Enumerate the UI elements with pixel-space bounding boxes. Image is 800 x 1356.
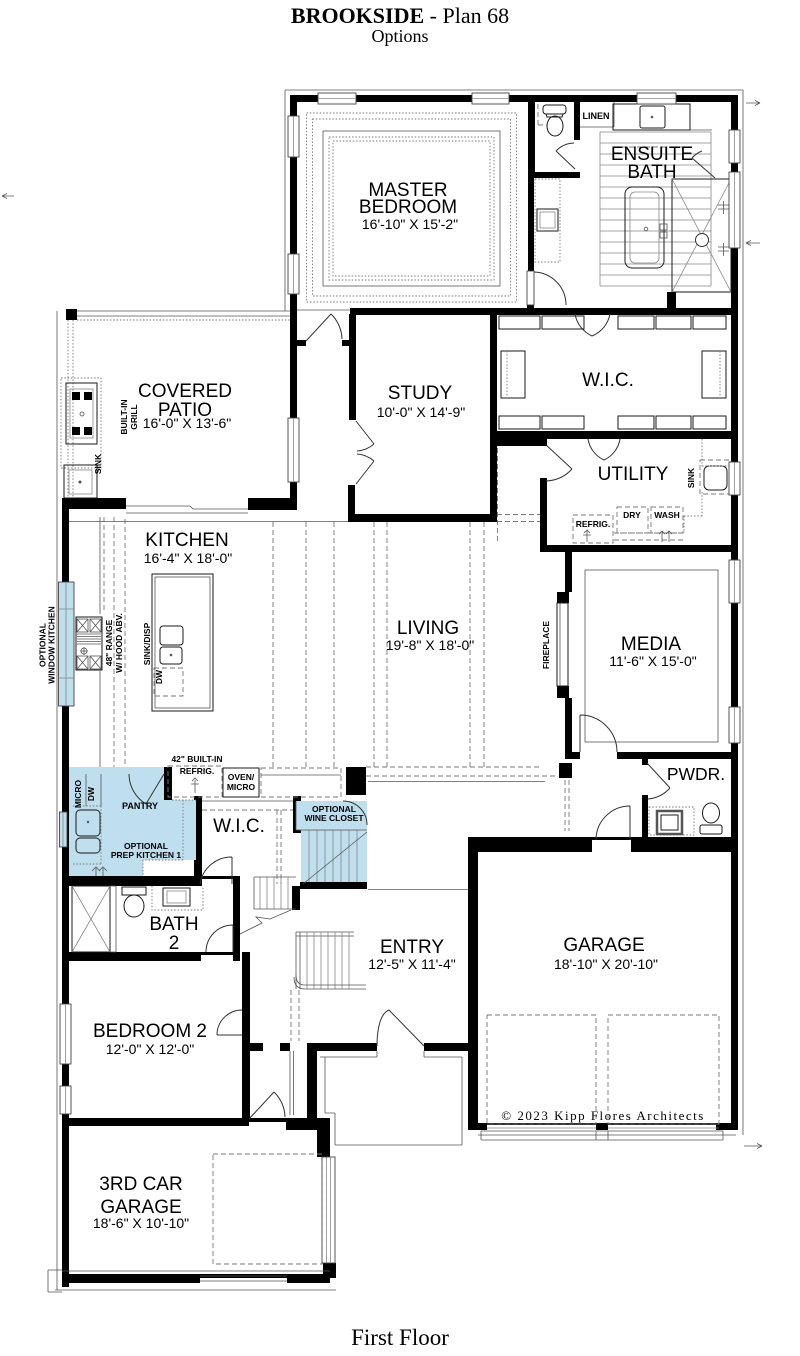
svg-text:W.I.C.: W.I.C. bbox=[213, 816, 265, 837]
svg-text:ENTRY: ENTRY bbox=[380, 937, 444, 958]
svg-text:SINK/DISP: SINK/DISP bbox=[142, 622, 152, 665]
svg-text:PANTRY: PANTRY bbox=[122, 801, 158, 811]
svg-text:SINK: SINK bbox=[93, 453, 103, 474]
svg-text:UTILITY: UTILITY bbox=[598, 464, 669, 485]
svg-text:48" RANGE: 48" RANGE bbox=[104, 619, 114, 666]
svg-text:12'-5" X 11'-4": 12'-5" X 11'-4" bbox=[368, 956, 455, 972]
svg-text:OVEN/: OVEN/ bbox=[228, 772, 255, 782]
svg-text:WINDOW KITCHEN: WINDOW KITCHEN bbox=[47, 606, 57, 683]
svg-text:COVERED: COVERED bbox=[138, 381, 232, 402]
svg-text:3RD CAR: 3RD CAR bbox=[99, 1174, 182, 1195]
svg-text:PWDR.: PWDR. bbox=[667, 764, 725, 784]
svg-text:MICRO: MICRO bbox=[73, 779, 83, 808]
svg-text:DRY: DRY bbox=[623, 510, 641, 520]
svg-text:BUILT-IN: BUILT-IN bbox=[119, 399, 129, 434]
svg-text:BATH: BATH bbox=[627, 162, 676, 183]
svg-text:11'-6" X 15'-0": 11'-6" X 15'-0" bbox=[609, 653, 696, 669]
svg-text:W/ HOOD ABV.: W/ HOOD ABV. bbox=[114, 613, 124, 673]
svg-text:REFRIG.: REFRIG. bbox=[180, 766, 214, 776]
svg-text:© 2023 Kipp Flores Architec: © 2023 Kipp Flores Architects bbox=[501, 1108, 705, 1123]
svg-text:REFRIG.: REFRIG. bbox=[576, 519, 610, 529]
svg-text:DW: DW bbox=[154, 669, 164, 684]
svg-text:STUDY: STUDY bbox=[388, 383, 453, 404]
svg-text:KITCHEN: KITCHEN bbox=[145, 530, 228, 551]
svg-text:BATH: BATH bbox=[149, 914, 198, 935]
svg-text:LINEN: LINEN bbox=[583, 111, 610, 121]
svg-text:MICRO: MICRO bbox=[227, 782, 256, 792]
svg-text:16'-4" X 18'-0": 16'-4" X 18'-0" bbox=[144, 550, 232, 566]
svg-text:GARAGE: GARAGE bbox=[563, 935, 644, 956]
svg-text:2: 2 bbox=[169, 933, 180, 954]
svg-text:W.I.C.: W.I.C. bbox=[582, 370, 634, 391]
svg-text:Options: Options bbox=[371, 26, 428, 46]
svg-text:WASH: WASH bbox=[654, 510, 680, 520]
svg-text:FIREPLACE: FIREPLACE bbox=[541, 621, 551, 670]
svg-text:BEDROOM 2: BEDROOM 2 bbox=[93, 1021, 207, 1042]
svg-text:16'-10" X 15'-2": 16'-10" X 15'-2" bbox=[362, 216, 458, 232]
svg-text:LIVING: LIVING bbox=[397, 618, 459, 639]
svg-text:42" BUILT-IN: 42" BUILT-IN bbox=[171, 754, 222, 764]
svg-text:MEDIA: MEDIA bbox=[621, 634, 682, 655]
svg-text:18'-6" X 10'-10": 18'-6" X 10'-10" bbox=[93, 1215, 189, 1231]
svg-text:First Floor: First Floor bbox=[351, 1325, 449, 1350]
svg-text:18'-10" X 20'-10": 18'-10" X 20'-10" bbox=[554, 956, 658, 972]
svg-text:10'-0" X 14'-9": 10'-0" X 14'-9" bbox=[377, 404, 465, 420]
svg-text:SINK: SINK bbox=[686, 467, 696, 488]
svg-text:BROOKSIDE - Plan 68: BROOKSIDE - Plan 68 bbox=[291, 3, 509, 28]
svg-text:WINE CLOSET: WINE CLOSET bbox=[304, 813, 364, 823]
svg-text:BEDROOM: BEDROOM bbox=[359, 197, 457, 218]
svg-text:16'-0" X 13'-6": 16'-0" X 13'-6" bbox=[143, 415, 231, 431]
svg-text:DW: DW bbox=[86, 786, 96, 801]
svg-text:19'-8" X 18'-0": 19'-8" X 18'-0" bbox=[386, 637, 474, 653]
svg-text:12'-0" X 12'-0": 12'-0" X 12'-0" bbox=[106, 1041, 194, 1057]
svg-text:GRILL: GRILL bbox=[129, 404, 139, 430]
svg-text:PREP KITCHEN 1: PREP KITCHEN 1 bbox=[111, 850, 181, 860]
